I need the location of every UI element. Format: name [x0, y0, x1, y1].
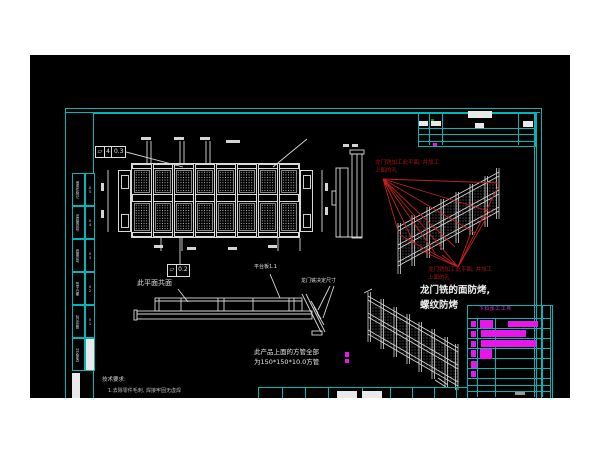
isometric-view-annotated — [398, 168, 499, 274]
main-note-line2: 螺纹防烤 — [420, 301, 458, 312]
cad-canvas[interactable]: 借用件登记 05 旧底图总号 04 底图总号 03 签字日期 02 标记处数 0… — [30, 55, 570, 398]
gantry-dim-label: 龙门铣决定尺寸 — [301, 279, 336, 285]
side-elevation-view — [134, 294, 325, 335]
cad-screenshot-page: 借用件登记 05 旧底图总号 04 底图总号 03 签字日期 02 标记处数 0… — [0, 0, 600, 450]
frame-extra-vertical — [550, 305, 551, 398]
bottom-table-strip — [258, 387, 467, 398]
top-title-table — [418, 113, 536, 147]
coplanar-label: 此平面共面 — [137, 279, 172, 287]
red-note-top-line1: 龙门铣加工此平面, 并加工 — [375, 160, 439, 166]
green-pixel-mark — [431, 119, 434, 121]
magenta-micro-mark — [345, 359, 349, 363]
process-title-block: 下料加工工序 — [467, 305, 553, 398]
tube-note-line1: 此产品上面的方管全部 — [254, 349, 319, 356]
tech-req-item: 1.去除零件毛刺, 焊接牢固无虚焊 — [108, 389, 181, 395]
magenta-micro-mark — [345, 352, 349, 357]
platform-label: 平台板1.1 — [254, 265, 277, 271]
process-block-header: 下料加工工序 — [479, 307, 512, 312]
main-note-line1: 龙门铣的面防烤, — [420, 286, 490, 297]
tube-note-line2: 为150*150*10.0方管 — [254, 359, 319, 366]
red-note-top-line2: 上面的孔 — [375, 168, 397, 174]
red-note-bottom-line1: 龙门铣加工此平面, 并加工 — [428, 267, 492, 273]
red-note-bottom-line2: 上面的孔 — [428, 275, 450, 281]
tech-req-title: 技术要求: — [102, 377, 126, 383]
section-view — [332, 150, 364, 238]
